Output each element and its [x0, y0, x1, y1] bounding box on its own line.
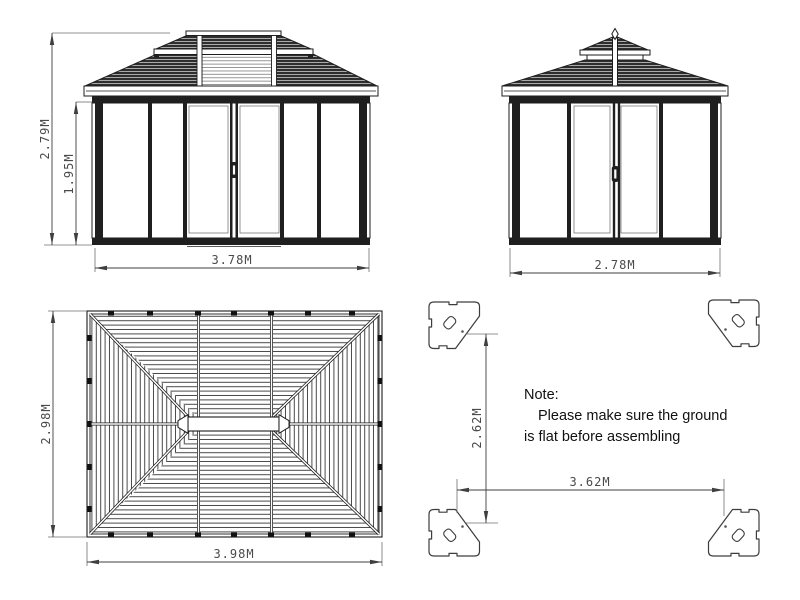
front-vent-post-right — [272, 36, 277, 87]
foot-plate-bottom-left — [429, 510, 480, 557]
dim-front-width: 3.78M — [211, 253, 252, 267]
dim-front-total-height: 2.79M — [38, 118, 52, 159]
front-base-rail — [92, 238, 370, 245]
footprint-view: 2.62M 3.62M — [429, 300, 759, 556]
front-walls — [92, 96, 370, 247]
dim-front-wall-height: 1.95M — [62, 153, 76, 194]
front-roof — [84, 31, 378, 96]
dim-footprint-width: 3.62M — [569, 475, 610, 489]
dim-footprint-depth: 2.62M — [470, 407, 484, 448]
foot-plate-top-left — [429, 302, 480, 349]
foot-plate-bottom-right — [709, 510, 760, 557]
dim-side-width: 2.78M — [594, 258, 635, 272]
drawing-svg: 2.79M 1.95M 3.78M — [0, 0, 800, 600]
side-post-left — [512, 103, 520, 238]
front-post-left — [95, 103, 103, 238]
dim-roof-plan-width: 3.98M — [213, 547, 254, 561]
assembly-drawing-page: 2.79M 1.95M 3.78M — [0, 0, 800, 600]
assembly-note: Note: Please make sure the ground is fla… — [524, 387, 727, 445]
roof-plan-ridge-vent — [188, 417, 279, 431]
front-upper-fascia — [154, 49, 313, 55]
dim-roof-plan-depth: 2.98M — [39, 403, 53, 444]
side-dimensions: 2.78M — [510, 248, 720, 277]
front-elevation-view: 2.79M 1.95M 3.78M — [38, 31, 378, 272]
side-base-rail — [509, 238, 721, 245]
side-top-rail — [509, 96, 721, 103]
side-roof — [502, 29, 728, 97]
front-post-right — [359, 103, 367, 238]
roof-plan-view: 2.98M 3.98M — [39, 311, 382, 566]
side-walls — [509, 96, 721, 245]
foot-plate-top-right — [709, 300, 760, 347]
side-elevation-view: 2.78M — [502, 29, 728, 278]
side-post-right — [710, 103, 718, 238]
note-line-2: is flat before assembling — [524, 429, 680, 445]
front-top-rail — [92, 96, 370, 103]
note-line-1: Please make sure the ground — [538, 408, 727, 424]
front-ridge-cap — [186, 31, 281, 36]
note-title: Note: — [524, 387, 559, 403]
front-vent-post-left — [197, 36, 202, 87]
front-roof-vent-screen — [202, 54, 272, 86]
front-upper-roof — [156, 35, 311, 49]
